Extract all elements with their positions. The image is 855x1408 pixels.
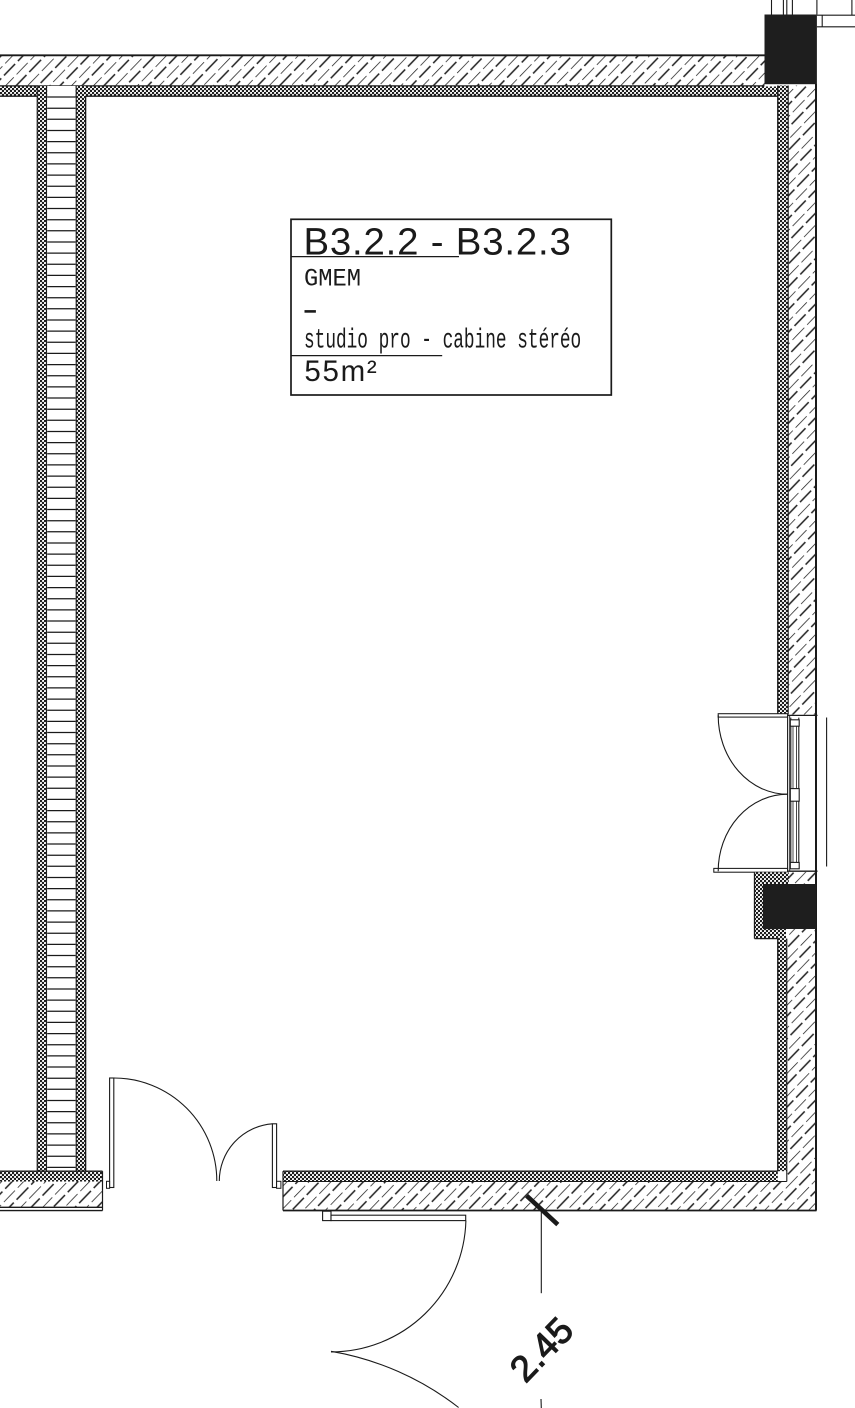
svg-text:studio pro - cabine stéréo: studio pro - cabine stéréo <box>304 325 581 357</box>
svg-text:55m²: 55m² <box>304 355 378 388</box>
svg-text:GMEM: GMEM <box>304 266 361 294</box>
svg-text:2.45: 2.45 <box>502 1309 582 1389</box>
